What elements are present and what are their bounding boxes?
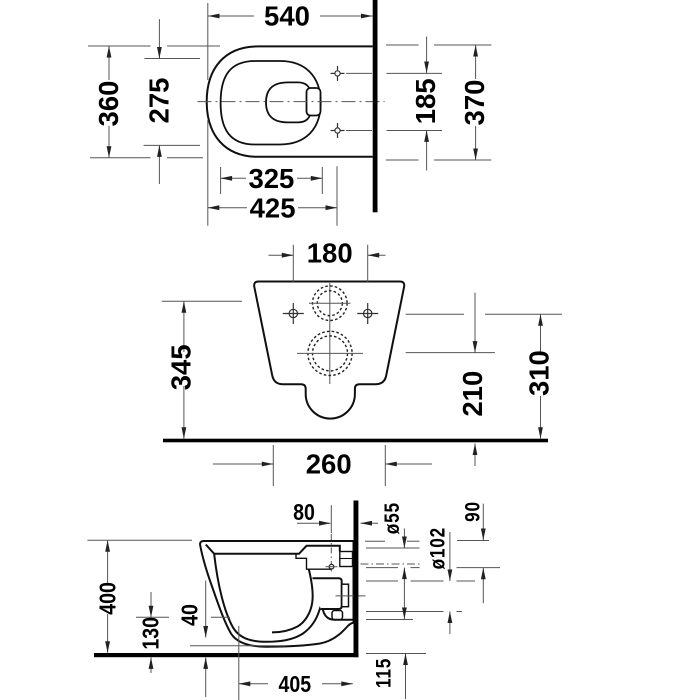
svg-text:370: 370: [459, 80, 490, 126]
svg-text:180: 180: [307, 237, 353, 268]
svg-text:405: 405: [278, 672, 311, 698]
svg-text:275: 275: [144, 78, 175, 124]
svg-text:310: 310: [523, 350, 554, 396]
svg-text:325: 325: [248, 163, 294, 194]
svg-text:400: 400: [95, 582, 121, 615]
svg-text:130: 130: [138, 617, 164, 650]
svg-text:210: 210: [457, 371, 488, 417]
svg-text:ø55: ø55: [380, 502, 404, 534]
svg-text:540: 540: [264, 1, 310, 32]
svg-text:425: 425: [250, 192, 296, 223]
svg-text:80: 80: [293, 499, 315, 525]
svg-text:90: 90: [461, 501, 485, 522]
svg-text:345: 345: [166, 344, 197, 390]
svg-text:360: 360: [93, 81, 124, 127]
svg-text:115: 115: [372, 658, 396, 688]
svg-text:185: 185: [410, 78, 441, 124]
svg-text:ø102: ø102: [426, 527, 450, 569]
svg-text:260: 260: [306, 449, 352, 480]
svg-text:40: 40: [177, 604, 203, 626]
